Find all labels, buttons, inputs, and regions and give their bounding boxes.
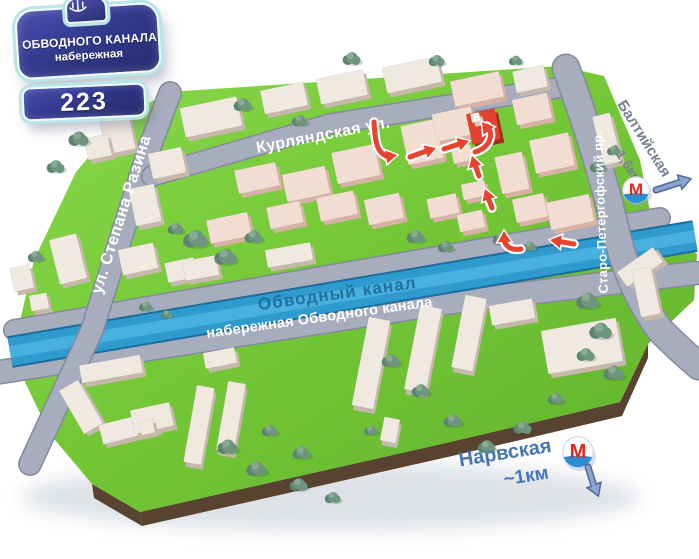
tree-cluster	[47, 160, 68, 174]
tree-cluster	[509, 56, 525, 66]
building-roof	[84, 134, 112, 161]
tree-cluster	[429, 55, 447, 67]
building-roof	[470, 112, 481, 123]
tree-cluster	[68, 132, 91, 147]
house-number-plate: 223	[21, 82, 146, 121]
building-roof	[139, 419, 156, 436]
plate-emblem-tab	[64, 0, 108, 24]
metro-m-letter: М	[629, 180, 643, 199]
building-roof	[10, 264, 35, 292]
ship-anchor-emblem-icon	[66, 0, 89, 14]
building-roof	[29, 293, 50, 312]
address-plate: ОБВОДНОГО КАНАЛА набережная 223	[16, 6, 166, 119]
street-name-plate: ОБВОДНОГО КАНАЛА набережная	[14, 2, 162, 81]
metro-m-letter: М	[570, 441, 587, 463]
direction-map: Курляндская ул. ул. Степана Разина Обвод…	[0, 0, 699, 559]
tree-cluster	[343, 52, 364, 66]
